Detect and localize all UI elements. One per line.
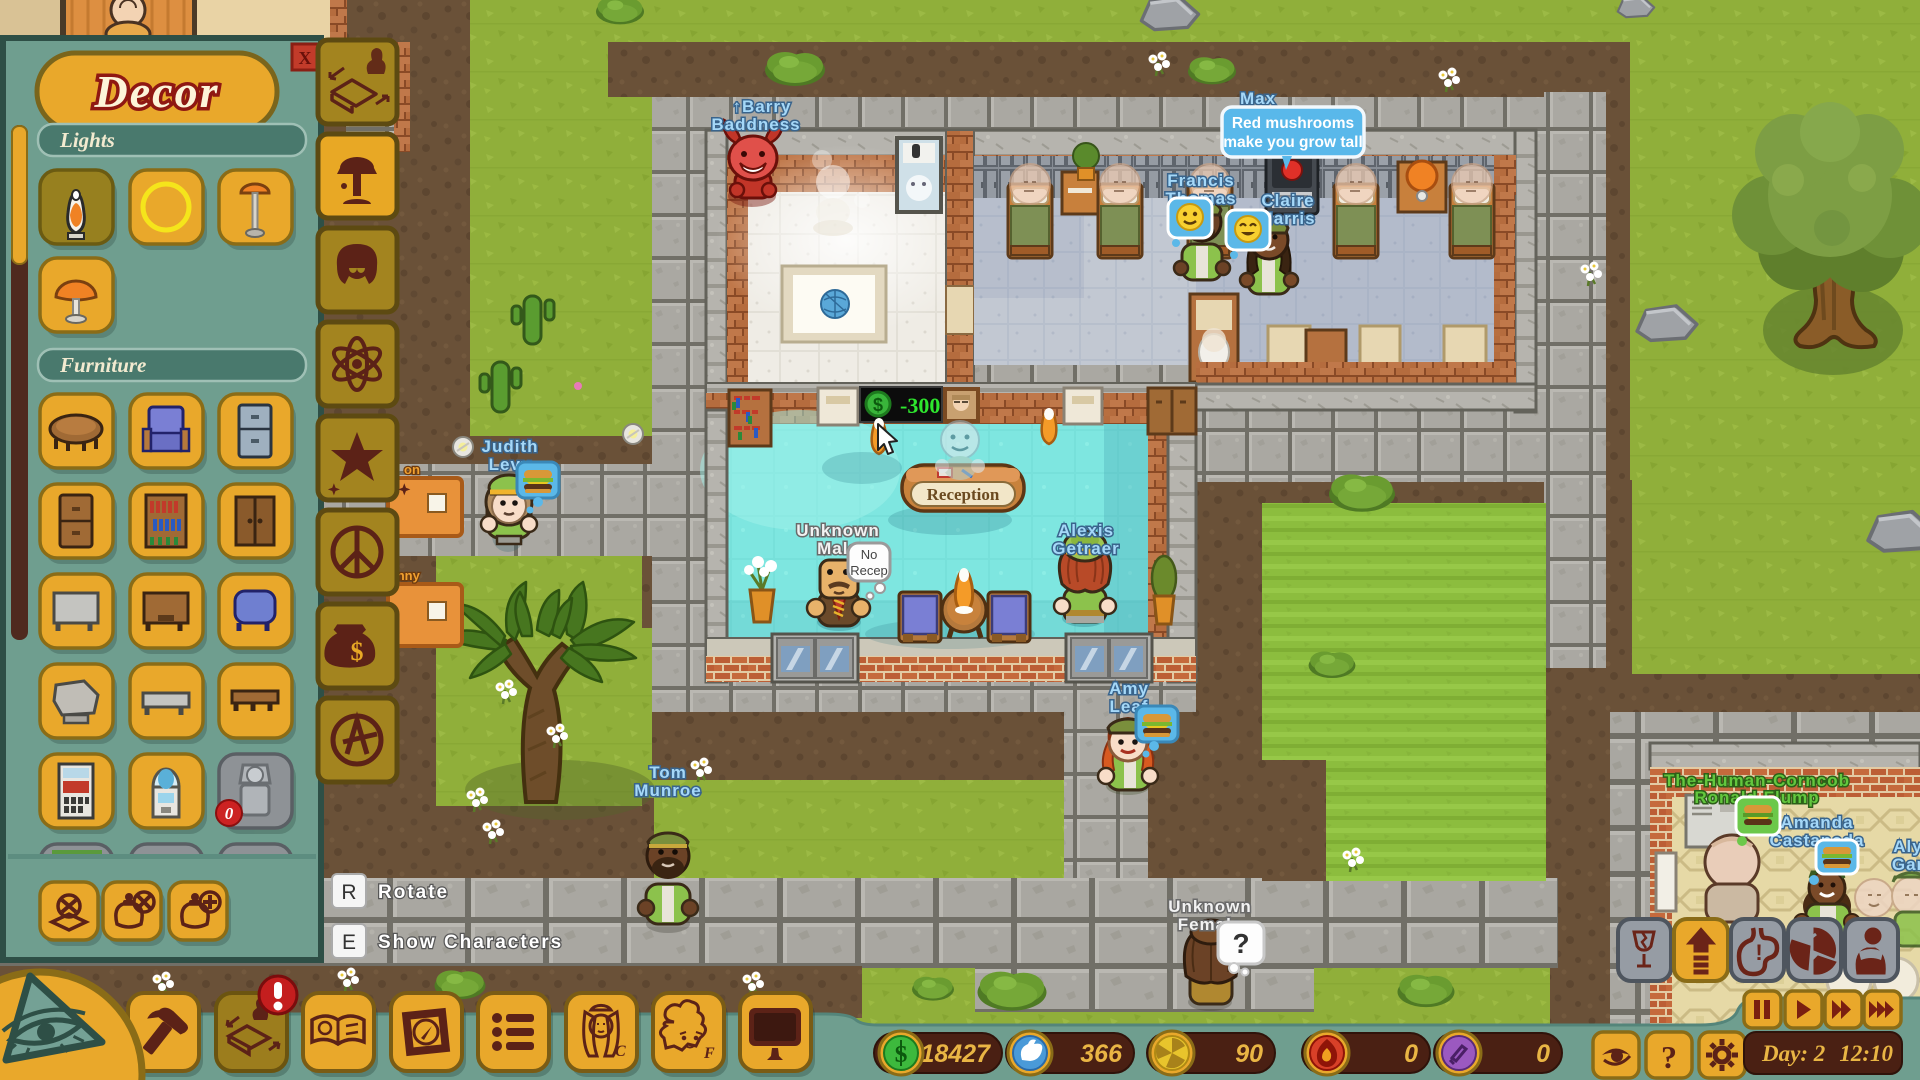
svg-text:on: on bbox=[404, 462, 420, 477]
svg-text:Aly: Aly bbox=[1893, 837, 1920, 856]
svg-text:12:10: 12:10 bbox=[1839, 1041, 1893, 1066]
svg-text:Alexis: Alexis bbox=[1058, 521, 1114, 540]
svg-text:?: ? bbox=[1661, 1039, 1677, 1075]
svg-text:No: No bbox=[861, 547, 878, 562]
svg-text:-300: -300 bbox=[900, 393, 940, 418]
svg-text:18427: 18427 bbox=[920, 1040, 991, 1068]
svg-text:C: C bbox=[615, 1043, 626, 1060]
svg-text:0: 0 bbox=[1536, 1040, 1550, 1068]
svg-text:Getraer: Getraer bbox=[1052, 539, 1119, 558]
svg-text:Lights: Lights bbox=[59, 128, 115, 152]
svg-text:Show Characters: Show Characters bbox=[378, 932, 563, 953]
svg-text:Max: Max bbox=[1240, 89, 1276, 108]
svg-text:Baddness: Baddness bbox=[711, 115, 800, 134]
svg-text:Amanda: Amanda bbox=[1780, 813, 1853, 832]
svg-text:Day: 2: Day: 2 bbox=[1761, 1041, 1825, 1066]
svg-text:?: ? bbox=[1232, 928, 1249, 959]
svg-text:$: $ bbox=[351, 637, 364, 666]
svg-text:Munroe: Munroe bbox=[634, 781, 701, 800]
svg-text:Recep: Recep bbox=[850, 563, 888, 578]
svg-text:Unknown: Unknown bbox=[1168, 897, 1252, 916]
svg-text:Amy: Amy bbox=[1109, 679, 1149, 698]
svg-text:X: X bbox=[299, 48, 312, 68]
svg-text:$: $ bbox=[873, 395, 883, 415]
svg-text:!: ! bbox=[1755, 940, 1762, 965]
svg-text:Unknown: Unknown bbox=[796, 521, 880, 540]
svg-text:↑Barry: ↑Barry bbox=[733, 97, 792, 116]
svg-text:Furniture: Furniture bbox=[59, 353, 146, 377]
svg-text:Judith: Judith bbox=[482, 437, 539, 456]
svg-text:Red mushrooms: Red mushrooms bbox=[1232, 115, 1354, 132]
svg-text:0: 0 bbox=[1404, 1040, 1418, 1068]
svg-text:Decor: Decor bbox=[94, 66, 220, 117]
svg-text:0: 0 bbox=[225, 804, 234, 823]
svg-text:Tom: Tom bbox=[649, 763, 687, 782]
svg-text:Reception: Reception bbox=[927, 485, 1000, 504]
svg-text:366: 366 bbox=[1080, 1040, 1123, 1068]
svg-text:Francis: Francis bbox=[1167, 171, 1234, 190]
svg-text:Claire: Claire bbox=[1261, 191, 1314, 210]
svg-text:90: 90 bbox=[1235, 1040, 1263, 1068]
svg-text:Rotate: Rotate bbox=[378, 882, 449, 903]
svg-text:Gar: Gar bbox=[1892, 855, 1920, 874]
svg-text:F: F bbox=[703, 1045, 715, 1062]
svg-text:R: R bbox=[341, 881, 356, 904]
svg-text:make you grow tall: make you grow tall bbox=[1223, 134, 1363, 151]
svg-text:E: E bbox=[342, 931, 356, 954]
